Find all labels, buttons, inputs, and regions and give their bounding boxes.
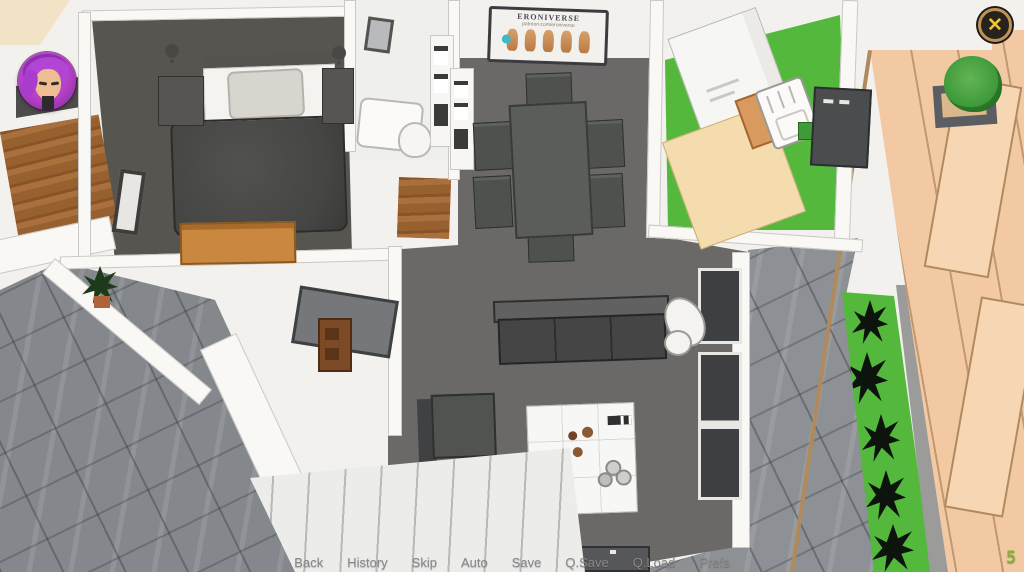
quick-menu-prefs[interactable]: Prefs — [699, 555, 729, 570]
quick-menu-back[interactable]: Back — [294, 555, 323, 570]
toilet[interactable] — [398, 122, 432, 158]
quick-menu-save[interactable]: Save — [512, 555, 542, 570]
potted-bush-icon — [944, 56, 1002, 112]
mug-icon — [615, 469, 632, 486]
wall-lamp-icon — [332, 46, 346, 60]
dining-shelf — [450, 68, 474, 170]
dining-chair — [473, 121, 513, 171]
wall-dining-kitchen — [646, 0, 664, 238]
cookie-icon — [582, 427, 593, 438]
dining-chair — [473, 175, 514, 229]
quick-menu-skip[interactable]: Skip — [412, 555, 437, 570]
close-button[interactable]: ✕ — [978, 8, 1012, 42]
entry-door-mat[interactable] — [397, 177, 451, 239]
poster-figure-icon — [506, 29, 518, 51]
sofa[interactable] — [493, 295, 671, 367]
dining-chair — [525, 72, 572, 106]
ceiling-top-left-wedge — [0, 0, 70, 45]
stove-unit[interactable] — [810, 87, 872, 169]
cookie-icon — [573, 447, 583, 457]
quick-menu-history[interactable]: History — [347, 555, 387, 570]
cookie-icon — [568, 431, 577, 440]
poster-figure-icon — [560, 30, 572, 52]
dining-table[interactable] — [509, 101, 594, 239]
eroniverse-poster[interactable]: ERONIVERSE patreon.com/eroniverse — [487, 6, 609, 66]
quick-menu: Back History Skip Auto Save Q.Save Q.Loa… — [0, 555, 1024, 570]
bed-pillow — [227, 68, 305, 120]
storage-chest — [180, 221, 297, 265]
bush-plant-icon — [852, 300, 888, 344]
quick-menu-qsave[interactable]: Q.Save — [565, 555, 608, 570]
poster-figure-icon — [578, 31, 590, 53]
quick-menu-qload[interactable]: Q.Load — [633, 555, 676, 570]
mug-icon — [597, 472, 613, 488]
bathroom-mirror — [364, 16, 394, 53]
wall-lamp-icon — [165, 44, 179, 58]
avatar-body — [42, 96, 54, 110]
balcony-planter — [94, 296, 110, 308]
wall-bedroom-left — [78, 12, 91, 264]
close-x-icon: ✕ — [987, 16, 1003, 35]
bed-blanket — [170, 115, 348, 237]
bush-plant-icon — [866, 470, 906, 520]
bush-plant-icon — [862, 414, 900, 462]
poster-figure-icon — [542, 30, 554, 52]
nightstand — [322, 68, 354, 124]
poster-figure-icon — [524, 29, 536, 51]
quick-menu-auto[interactable]: Auto — [461, 555, 488, 570]
living-window-glass — [698, 352, 742, 500]
side-dresser — [318, 318, 352, 372]
floor-lamp-base — [664, 330, 692, 356]
tv-remote — [608, 415, 632, 425]
game-viewport: ERONIVERSE patreon.com/eroniverse — [0, 0, 1024, 572]
nightstand — [158, 76, 204, 126]
player-avatar-icon[interactable] — [18, 52, 76, 110]
